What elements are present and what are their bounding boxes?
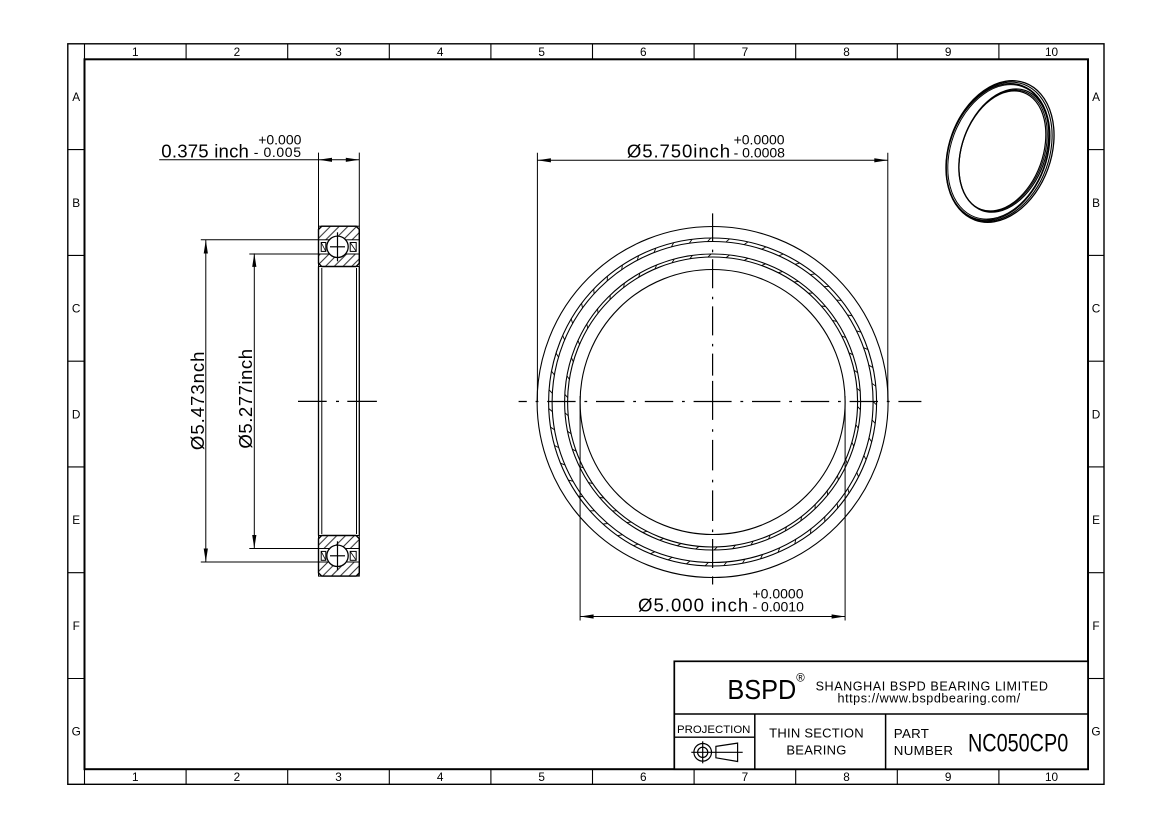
svg-text:6: 6	[640, 45, 647, 59]
svg-text:2: 2	[234, 45, 241, 59]
svg-text:9: 9	[945, 45, 952, 59]
svg-text:- 0.0010: - 0.0010	[753, 598, 805, 614]
svg-text:1: 1	[132, 45, 139, 59]
svg-text:NUMBER: NUMBER	[894, 743, 953, 758]
svg-text:3: 3	[335, 770, 342, 784]
svg-text:https://www.bspdbearing.com/: https://www.bspdbearing.com/	[838, 692, 1021, 706]
svg-text:®: ®	[796, 672, 805, 684]
svg-text:9: 9	[945, 770, 952, 784]
svg-text:0.375 inch: 0.375 inch	[161, 141, 249, 162]
svg-text:5: 5	[538, 45, 545, 59]
svg-text:10: 10	[1045, 770, 1059, 784]
svg-text:6: 6	[640, 770, 647, 784]
svg-text:1: 1	[132, 770, 139, 784]
svg-text:C: C	[72, 302, 81, 316]
svg-text:- 0.005: - 0.005	[254, 144, 302, 160]
svg-text:G: G	[72, 725, 81, 739]
svg-text:- 0.0008: - 0.0008	[734, 144, 786, 160]
svg-text:Ø5.473nch: Ø5.473nch	[187, 351, 208, 451]
svg-text:5: 5	[538, 770, 545, 784]
svg-text:B: B	[1092, 196, 1100, 210]
svg-text:E: E	[1092, 513, 1100, 527]
svg-text:2: 2	[234, 770, 241, 784]
svg-text:A: A	[1092, 90, 1100, 104]
svg-text:C: C	[1092, 302, 1101, 316]
svg-text:Ø5.277inch: Ø5.277inch	[235, 348, 256, 448]
svg-text:8: 8	[843, 45, 850, 59]
svg-text:BEARING: BEARING	[786, 742, 846, 757]
svg-text:THIN SECTION: THIN SECTION	[769, 726, 864, 741]
svg-text:4: 4	[437, 45, 444, 59]
svg-text:10: 10	[1045, 45, 1059, 59]
svg-text:D: D	[72, 407, 81, 421]
svg-text:PART: PART	[894, 726, 929, 741]
svg-text:F: F	[73, 619, 80, 633]
svg-text:NC050CP0: NC050CP0	[968, 729, 1068, 757]
svg-text:A: A	[72, 90, 80, 104]
svg-text:4: 4	[437, 770, 444, 784]
svg-text:D: D	[1092, 407, 1101, 421]
svg-text:BSPD: BSPD	[727, 674, 796, 705]
svg-text:B: B	[72, 196, 80, 210]
svg-text:G: G	[1091, 725, 1100, 739]
svg-text:7: 7	[742, 770, 749, 784]
svg-text:3: 3	[335, 45, 342, 59]
svg-text:Ø5.000 inch: Ø5.000 inch	[638, 594, 749, 615]
svg-text:8: 8	[843, 770, 850, 784]
svg-text:Ø5.750inch: Ø5.750inch	[627, 140, 731, 161]
svg-text:PROJECTION: PROJECTION	[677, 724, 750, 736]
svg-text:7: 7	[742, 45, 749, 59]
svg-text:E: E	[72, 513, 80, 527]
svg-text:F: F	[1092, 619, 1099, 633]
